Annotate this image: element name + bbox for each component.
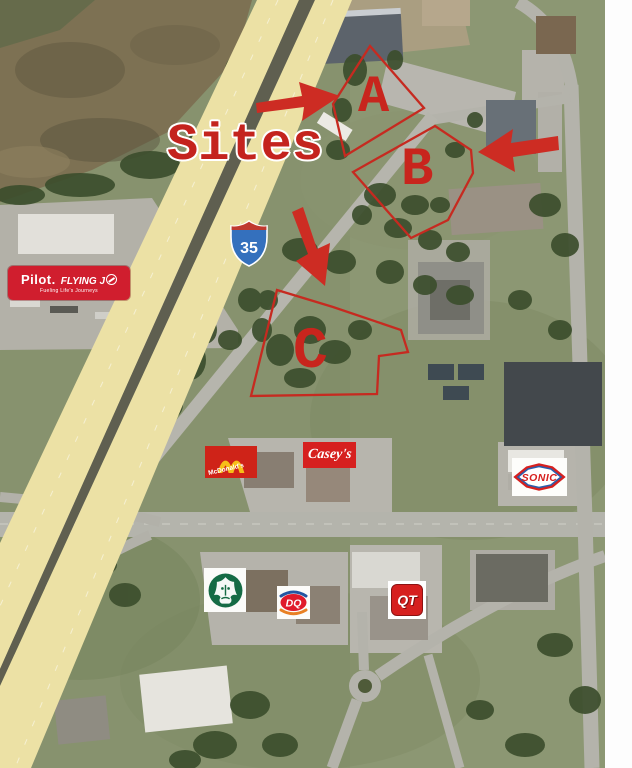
pilot-travel-center-building (18, 214, 114, 254)
caseys-label: Casey's (307, 447, 352, 463)
sonic-label: SONIC (522, 472, 558, 484)
dq-ellipse-icon: DQ (277, 586, 310, 619)
dq-label: DQ (286, 598, 302, 610)
qt-label: QT (397, 592, 416, 608)
sonic-logo: SONIC (512, 458, 567, 496)
site-b-label: B (401, 144, 433, 198)
qt-red-square: QT (391, 584, 423, 616)
flying-j-text: FLYING J (61, 276, 105, 287)
starbucks-siren-icon (207, 572, 244, 609)
pilot-flying-j-logo: Pilot. FLYING J Fueling Life's Journeys (8, 266, 130, 300)
interstate-35-shield: 35 (229, 220, 269, 267)
site-a-label: A (358, 72, 389, 124)
site-c-label: C (293, 324, 328, 382)
pilot-brand-text: Pilot. (21, 272, 56, 287)
dairy-queen-logo: DQ (277, 586, 310, 619)
flying-j-plane-icon (106, 274, 117, 285)
starbucks-logo (204, 568, 246, 612)
sites-title: Sites (167, 120, 323, 172)
sonic-sign-icon: SONIC (512, 458, 567, 496)
shield-number: 35 (240, 240, 258, 257)
pilot-logo-row: Pilot. FLYING J (21, 272, 117, 287)
pilot-tagline: Fueling Life's Journeys (40, 288, 98, 294)
mcdonalds-logo: McDonald's (205, 446, 257, 478)
quiktrip-logo: QT (388, 581, 426, 619)
caseys-logo: Casey's (303, 442, 356, 468)
white-margin (605, 0, 632, 768)
site-aerial-map: Sites A B C 35 Pilot. FLYING J Fueling L… (0, 0, 632, 768)
